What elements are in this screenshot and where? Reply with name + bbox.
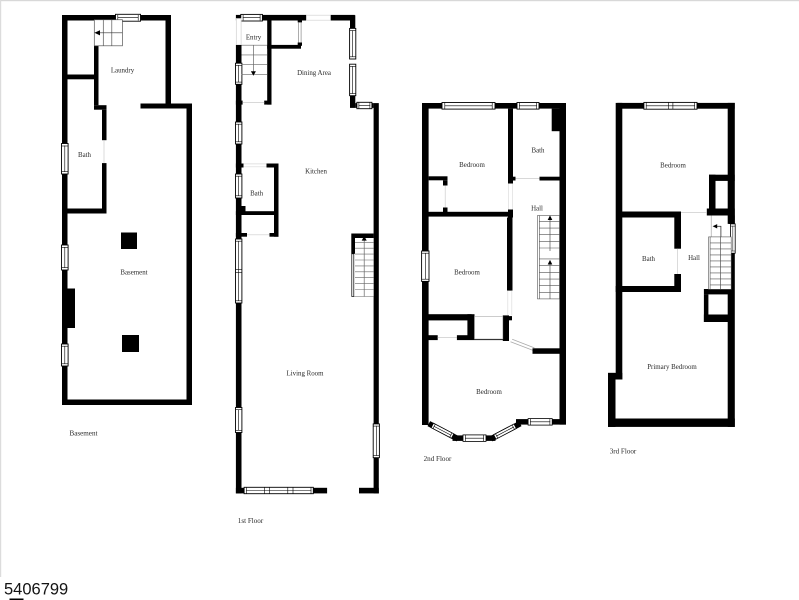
svg-text:Basement: Basement xyxy=(120,269,147,276)
svg-text:Basement: Basement xyxy=(70,429,98,437)
svg-text:Bedroom: Bedroom xyxy=(660,162,686,169)
svg-text:2nd Floor: 2nd Floor xyxy=(424,455,452,463)
svg-text:Dining Area: Dining Area xyxy=(297,70,331,77)
svg-text:Bedroom: Bedroom xyxy=(476,389,502,396)
svg-text:Laundry: Laundry xyxy=(111,67,135,74)
svg-text:Entry: Entry xyxy=(246,34,262,41)
svg-text:5406799: 5406799 xyxy=(4,581,68,599)
svg-text:Bath: Bath xyxy=(642,256,656,263)
svg-text:1st Floor: 1st Floor xyxy=(238,517,264,525)
svg-text:Kitchen: Kitchen xyxy=(305,168,327,175)
svg-text:Bedroom: Bedroom xyxy=(459,162,485,169)
svg-text:Bath: Bath xyxy=(78,152,92,159)
svg-text:Living Room: Living Room xyxy=(287,370,325,377)
svg-text:3rd Floor: 3rd Floor xyxy=(610,447,637,455)
svg-text:Bath: Bath xyxy=(531,147,545,154)
svg-text:Bedroom: Bedroom xyxy=(454,269,480,276)
svg-text:Hall: Hall xyxy=(688,255,700,262)
svg-text:Bath: Bath xyxy=(250,190,264,197)
svg-text:Primary Bedroom: Primary Bedroom xyxy=(647,364,697,371)
svg-text:Hall: Hall xyxy=(531,205,543,212)
